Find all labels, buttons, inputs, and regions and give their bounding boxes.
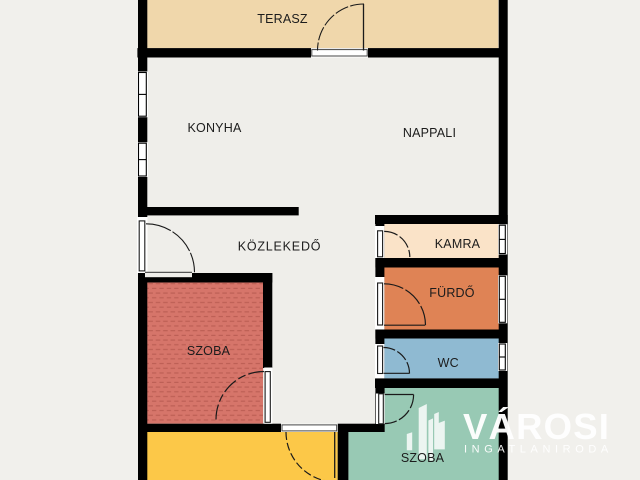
- svg-text:KONYHA: KONYHA: [188, 121, 242, 135]
- svg-text:KAMRA: KAMRA: [435, 237, 481, 251]
- svg-text:SZOBA: SZOBA: [187, 344, 231, 358]
- svg-text:TERASZ: TERASZ: [257, 12, 308, 26]
- svg-text:FÜRDŐ: FÜRDŐ: [429, 285, 475, 300]
- svg-text:INGATLANIRODA: INGATLANIRODA: [464, 443, 613, 455]
- svg-text:SZOBA: SZOBA: [401, 451, 445, 465]
- svg-text:KÖZLEKEDŐ: KÖZLEKEDŐ: [238, 239, 322, 254]
- svg-text:NAPPALI: NAPPALI: [403, 126, 456, 140]
- svg-text:VÁROSI: VÁROSI: [463, 406, 610, 447]
- svg-text:WC: WC: [438, 356, 459, 370]
